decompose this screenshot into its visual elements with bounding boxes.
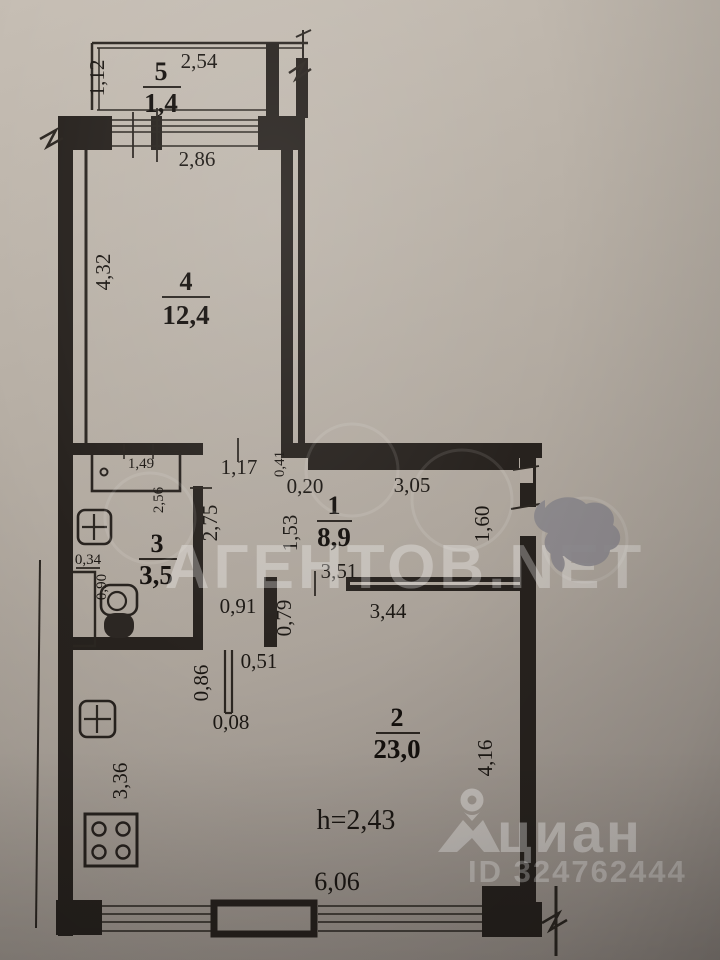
floorplan-drawing: 1,12 5 1,4 2,54 2,86 4,32 4 12,4 1,49 2,…	[0, 0, 720, 960]
dim-label: 0,51	[241, 649, 278, 673]
room2-number: 2	[391, 703, 404, 732]
wall-room1-top-lower	[308, 457, 519, 470]
wall-bathroom-right-jamb	[193, 443, 203, 455]
room4-number: 4	[180, 267, 193, 296]
room5-number: 5	[155, 57, 168, 86]
break-mark-bottom-right	[542, 913, 567, 930]
wall-bottom-pier	[214, 903, 314, 934]
wall-room4-right-outer	[298, 150, 305, 448]
pin-tip-icon	[464, 812, 480, 821]
room3-number: 3	[151, 529, 164, 558]
dim-label: 6,06	[314, 867, 360, 896]
cian-id-watermark: ID 324762444	[468, 854, 687, 889]
dim-label: 2,54	[181, 49, 218, 73]
dim-label: 0,08	[213, 710, 250, 734]
stove-burner-icon	[117, 846, 130, 859]
window-bottom-right	[318, 906, 482, 931]
room1-number: 1	[328, 491, 341, 520]
dim-label: 1,49	[128, 456, 154, 472]
stove-burner-icon	[93, 846, 106, 859]
room2-area: 23,0	[373, 734, 420, 764]
stove-burner-icon	[93, 823, 106, 836]
fixtures	[73, 453, 180, 866]
toilet-bowl-icon	[108, 592, 126, 610]
dim-label: 0,34	[75, 552, 102, 568]
dim-label: 4,16	[473, 740, 497, 777]
wall-bottom-left-block	[56, 900, 102, 935]
dim-label: 1,12	[85, 60, 109, 97]
wall-left-outer-line	[36, 560, 40, 928]
wall-right-niche	[520, 468, 533, 483]
wall-bathroom-bottom	[58, 637, 203, 650]
dim-label: 2,56	[151, 486, 167, 513]
floorplan-photo: 1,12 5 1,4 2,54 2,86 4,32 4 12,4 1,49 2,…	[0, 0, 720, 960]
stove-burner-icon	[117, 823, 130, 836]
dim-label: 3,36	[108, 763, 132, 800]
dim-label: 0,20	[287, 474, 324, 498]
window-bottom-left	[102, 906, 212, 931]
wall-top-right-block	[258, 116, 305, 150]
ceiling-height-note: h=2,43	[317, 805, 396, 836]
room4-area: 12,4	[162, 300, 209, 330]
dim-label: 4,32	[91, 254, 115, 291]
balcony-divider-wall	[266, 43, 279, 118]
wall-bottom-right-block	[482, 902, 542, 937]
wall-room4-right	[281, 150, 293, 448]
dim-label: 2,86	[179, 147, 216, 171]
cian-logo: циан ID 324762444	[438, 792, 687, 889]
wall-top-left-block	[58, 116, 112, 150]
toilet-base-icon	[104, 613, 134, 638]
dim-label: 0,86	[189, 665, 213, 702]
dim-label: 3,44	[370, 599, 407, 623]
dim-label: 0,90	[94, 574, 110, 600]
partition-stub	[225, 650, 232, 713]
bathtub-drain-icon	[101, 469, 108, 476]
room5-area: 1,4	[144, 88, 178, 118]
dim-label: 1,17	[221, 455, 258, 479]
dim-label: 0,79	[272, 600, 296, 637]
mountain-icon	[438, 820, 500, 852]
dim-label: 0,41	[272, 451, 288, 477]
pin-icon	[464, 792, 480, 808]
vent-shaft	[73, 572, 95, 646]
wall-left	[58, 116, 73, 936]
wall-room1-top-upper	[281, 443, 542, 458]
stove-icon	[85, 814, 137, 866]
